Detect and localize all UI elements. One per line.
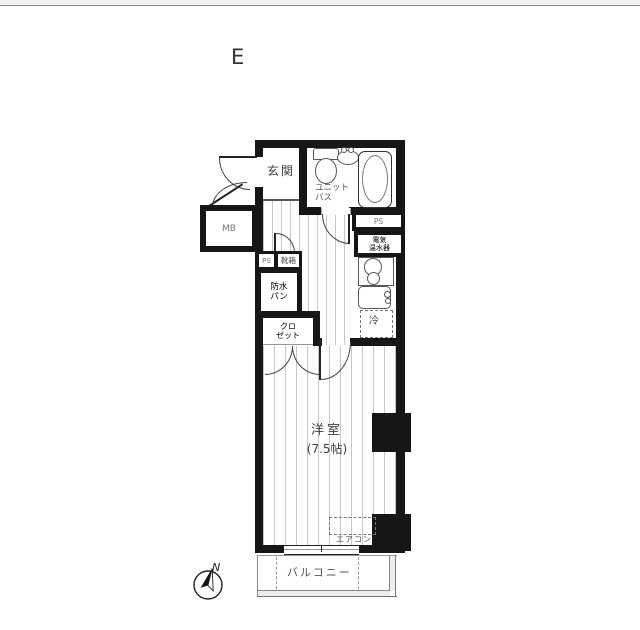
wall-genkan-bath-divider (299, 140, 307, 215)
mb-label: MB (222, 224, 236, 234)
water-heater-line1: 電気 (373, 236, 387, 244)
waterproof-pan-inner: 防水 パン (261, 273, 297, 311)
closet-front-line (263, 344, 313, 345)
waterproof-pan-line2: パン (270, 292, 287, 302)
closet-line1: クロ (280, 322, 296, 332)
wall-right (396, 140, 405, 553)
genkan-label: 玄関 (267, 164, 295, 178)
page-top-rule (0, 5, 640, 6)
ps-kitchen-label: PS (374, 217, 383, 226)
kitchen-faucet-top (384, 291, 391, 298)
unit-bath-label-line2: バス (315, 193, 349, 203)
balcony-right-outer (395, 555, 396, 597)
kitchen-faucet-bottom (385, 298, 391, 304)
balcony-bottom-inner (257, 590, 390, 591)
unit-bath-label-line1: ユニット (315, 183, 349, 193)
main-room-label: 洋室 (306, 423, 348, 439)
balcony-divider-right (358, 557, 359, 589)
aircon-label: エアコン (336, 535, 372, 545)
mb-box-inner: MB (206, 211, 252, 246)
water-heater-inner: 電気 温水器 (358, 235, 401, 253)
wall-top (255, 140, 405, 148)
pillar-lower-right (372, 514, 411, 551)
genkan-step-line (263, 199, 299, 201)
stove-burner-small (367, 272, 380, 285)
wall-bath-bottom-left (299, 207, 321, 215)
wall-left-upper (255, 140, 263, 157)
balcony-label: バルコニー (287, 566, 352, 579)
wall-bottom-left (255, 545, 284, 553)
wall-mainroom-top-right (350, 338, 405, 346)
compass-north-label: N (212, 561, 220, 574)
aircon-space (329, 517, 376, 535)
fridge-label: 冷 (369, 316, 379, 328)
balcony-right-inner (389, 555, 390, 591)
balcony-bottom-outer (257, 596, 397, 597)
shoe-box-inner: 靴箱 (278, 254, 299, 267)
ps-hall-inner: PS (259, 254, 274, 267)
bath-sink-faucet-right (348, 147, 354, 153)
bath-sink-faucet-left (341, 147, 347, 153)
plan-letter: E (231, 45, 244, 70)
bath-sink (337, 150, 359, 165)
bath-door-leaf (348, 214, 350, 244)
pillar-upper-right (372, 413, 411, 452)
balcony-window-center-tick (321, 546, 322, 552)
unit-bath-label: ユニット バス (315, 183, 349, 203)
ps-hall-label: PS (262, 257, 271, 265)
balcony-divider-left (276, 557, 277, 589)
balcony-top-line (257, 555, 397, 556)
water-heater-line2: 温水器 (369, 244, 390, 252)
toilet-bowl (315, 158, 337, 184)
waterproof-pan-line1: 防水 (270, 282, 287, 292)
compass: N (189, 555, 231, 605)
ps-kitchen-inner: PS (356, 215, 401, 227)
closet-line2: ゼット (276, 331, 300, 341)
entrance-door-arc-2 (212, 182, 247, 207)
shoe-box-label: 靴箱 (281, 255, 296, 266)
floorplan-page: E 玄関 MB ユニット バス PS (0, 0, 640, 630)
bathtub-inner (362, 155, 388, 203)
main-room-size-label: (7.5帖) (298, 442, 356, 456)
closet-interior: クロ ゼット (263, 318, 313, 344)
